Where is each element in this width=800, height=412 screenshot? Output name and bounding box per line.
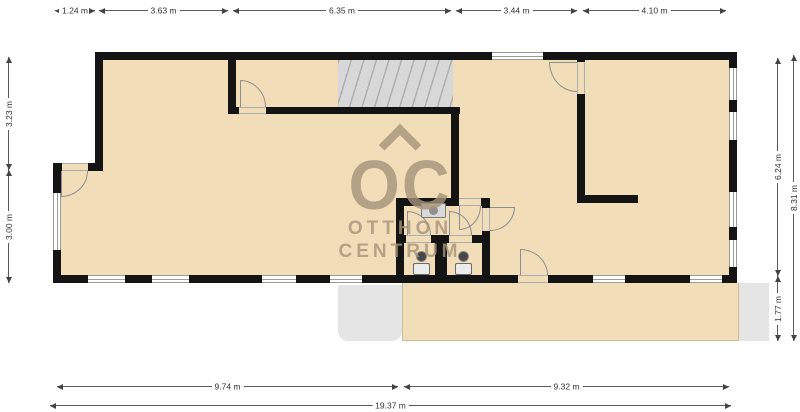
dimension-label: 3.44 m (501, 6, 533, 16)
door-gap-entry-left (62, 163, 88, 171)
dimension-label: 3.23 m (4, 98, 14, 130)
exterior-steps (338, 285, 402, 341)
lower-extension-area (402, 283, 739, 341)
window-right-4 (729, 240, 737, 267)
window-bottom-1 (88, 275, 125, 283)
stairs (338, 60, 453, 108)
door-gap-bath-right (482, 208, 490, 231)
watermark-logo: OC (320, 151, 480, 218)
window-right-2 (729, 112, 737, 140)
toilet-2-tank-icon (455, 263, 472, 275)
dimension-label: 1.24 m (59, 6, 91, 16)
dim-top-2: 3.63 m (99, 10, 228, 11)
dim-bottom-1: 9.74 m (57, 386, 398, 387)
dimension-label: 6.24 m (773, 151, 783, 183)
wall-top (95, 52, 737, 60)
window-left (53, 193, 61, 250)
dimension-label: 9.74 m (212, 382, 244, 392)
dim-bottom-total: 19.37 m (50, 405, 731, 406)
dimension-label: 19.37 m (372, 401, 409, 411)
floor-plan: OC OTTHON CENTRUM 1.24 m 3.63 m 6.35 m 3… (0, 0, 800, 412)
wall-rightroom-horizontal (577, 195, 638, 203)
window-bottom-2 (152, 275, 189, 283)
dim-top-3: 6.35 m (233, 10, 451, 11)
dim-top-5: 4.10 m (583, 10, 726, 11)
toilet-1-tank-icon (413, 263, 430, 275)
door-gap-hall (239, 107, 266, 114)
window-bottom-5 (593, 275, 625, 283)
wall-left-upper (95, 52, 103, 171)
dimension-label: 1.77 m (773, 293, 783, 325)
dim-right-2: 1.77 m (777, 276, 778, 341)
dimension-label: 9.32 m (551, 382, 583, 392)
dimension-label: 3.63 m (148, 6, 180, 16)
window-bottom-3 (262, 275, 296, 283)
wall-hall-vertical (228, 60, 236, 114)
terrace (737, 283, 769, 341)
dimension-label: 6.35 m (326, 6, 358, 16)
door-gap-bottom (518, 275, 548, 283)
dimension-label: 3.00 m (4, 211, 14, 243)
watermark: OC OTTHON CENTRUM (320, 130, 480, 263)
window-bottom-4 (330, 275, 362, 283)
window-right-3 (729, 192, 737, 227)
window-top (492, 52, 543, 60)
watermark-name-line2: CENTRUM (320, 240, 480, 263)
dim-right-total: 8.31 m (793, 55, 794, 341)
window-right-1 (729, 68, 737, 100)
door-gap-midroom (577, 62, 585, 94)
dim-left-2: 3.00 m (8, 170, 9, 283)
window-bottom-6 (690, 275, 722, 283)
dim-top-4: 3.44 m (456, 10, 577, 11)
dimension-label: 4.10 m (639, 6, 671, 16)
dim-right-1: 6.24 m (777, 58, 778, 276)
dimension-label: 8.31 m (789, 182, 799, 214)
dim-bottom-2: 9.32 m (404, 386, 729, 387)
dim-left-1: 3.23 m (8, 57, 9, 170)
dim-top-1: 1.24 m (55, 10, 95, 11)
